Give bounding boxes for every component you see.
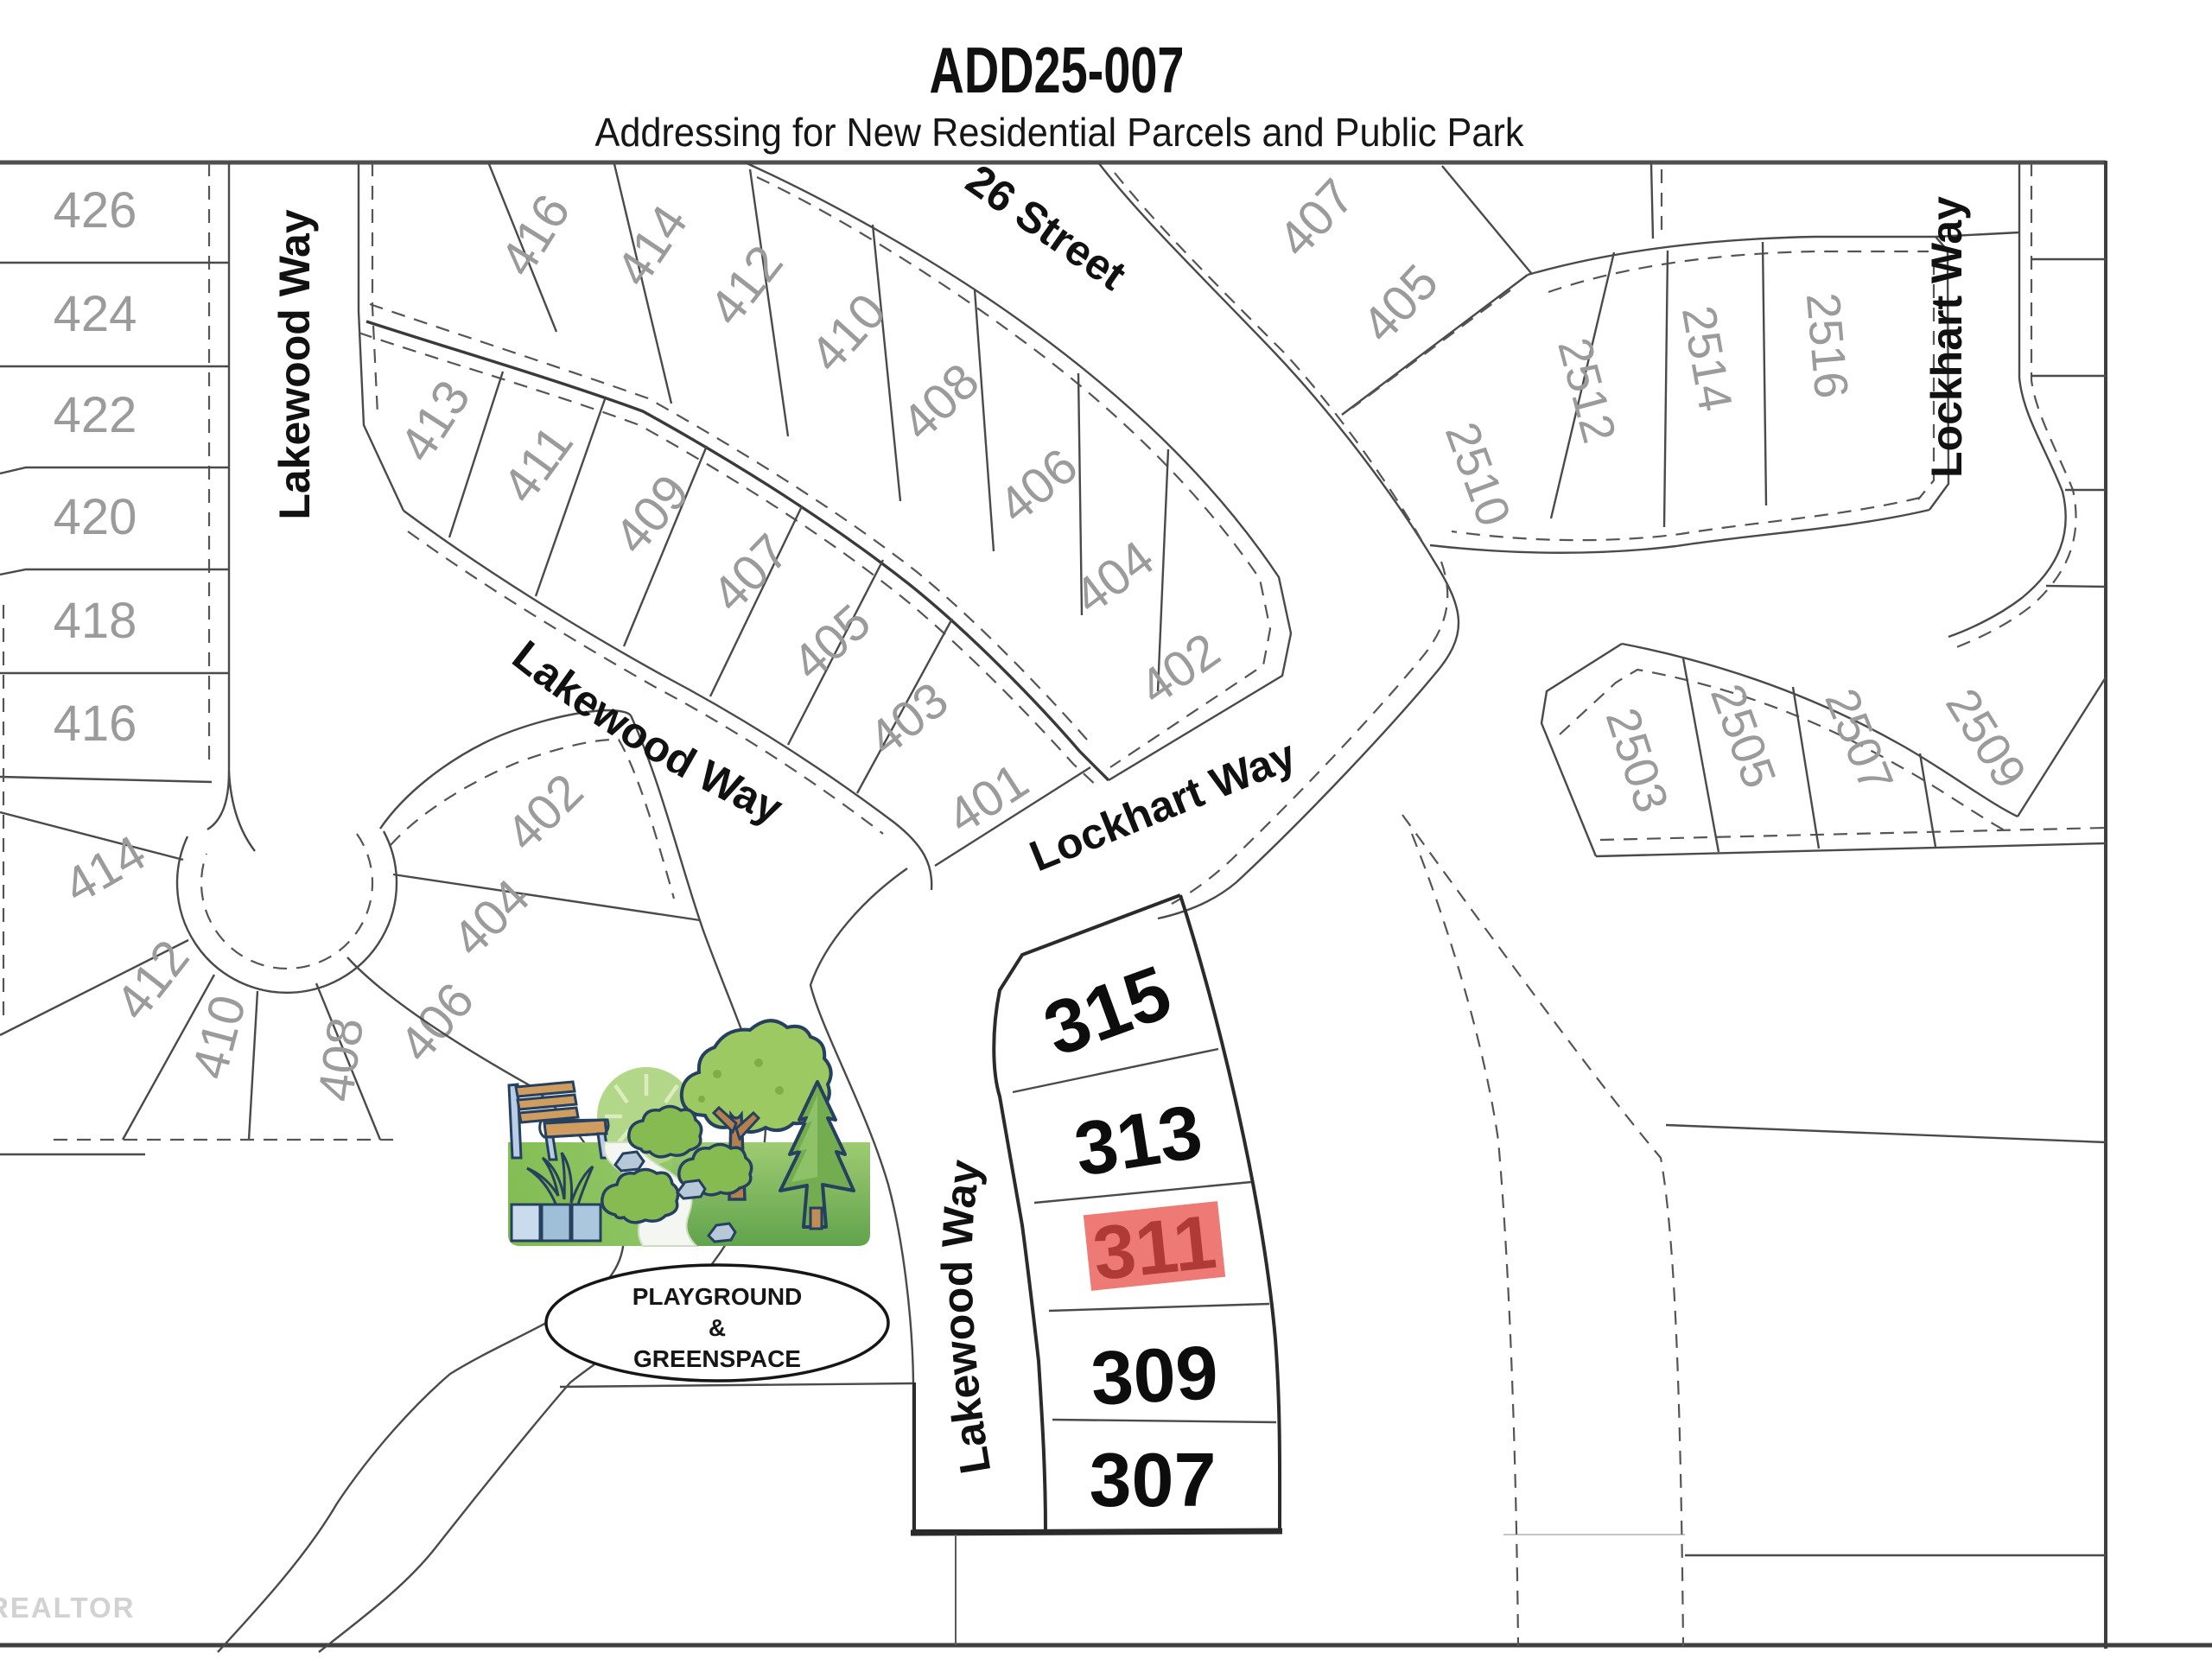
svg-text:424: 424 <box>54 286 137 342</box>
svg-text:426: 426 <box>54 182 137 238</box>
svg-text:309: 309 <box>1089 1329 1220 1421</box>
svg-text:422: 422 <box>54 387 137 443</box>
svg-text:GREENSPACE: GREENSPACE <box>633 1345 801 1372</box>
svg-text:Lockhart Way: Lockhart Way <box>1923 196 1971 478</box>
svg-text:311: 311 <box>1089 1198 1220 1296</box>
svg-text:408: 408 <box>308 1014 375 1105</box>
svg-text:418: 418 <box>54 593 137 649</box>
svg-text:Lakewood Way: Lakewood Way <box>270 209 319 520</box>
svg-text:&: & <box>709 1314 726 1341</box>
svg-text:2516: 2516 <box>1796 290 1859 400</box>
svg-text:PLAYGROUND: PLAYGROUND <box>632 1283 803 1310</box>
svg-text:ADD25-007: ADD25-007 <box>930 34 1185 106</box>
svg-text:REALTOR: REALTOR <box>0 1592 135 1624</box>
svg-text:416: 416 <box>54 696 137 752</box>
svg-text:Addressing for New Residential: Addressing for New Residential Parcels a… <box>595 110 1525 155</box>
svg-text:420: 420 <box>54 489 137 545</box>
svg-text:307: 307 <box>1090 1437 1217 1522</box>
